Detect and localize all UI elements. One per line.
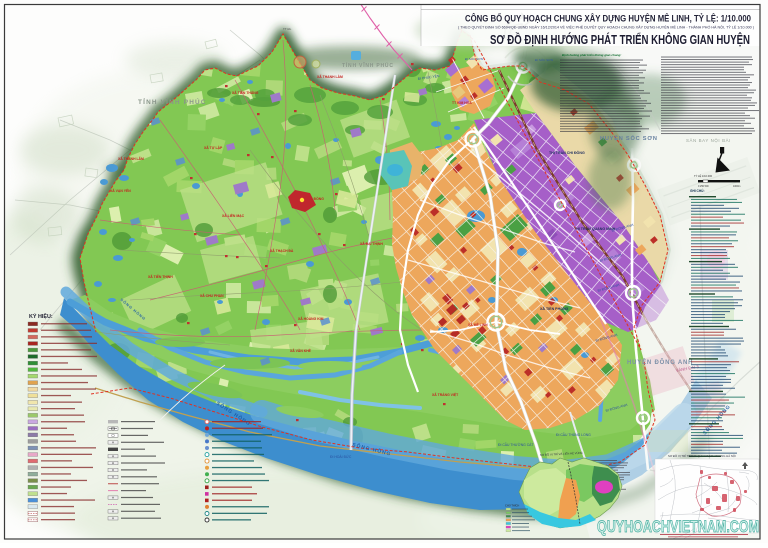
svg-text:SÂN BAY NỘI BÀI: SÂN BAY NỘI BÀI — [686, 138, 731, 143]
svg-text:XÃ TỰ LẬP: XÃ TỰ LẬP — [204, 145, 223, 150]
svg-text:XÃ HOÀNG KIM: XÃ HOÀNG KIM — [298, 316, 324, 321]
svg-text:TT KIM HOA: TT KIM HOA — [452, 101, 472, 105]
svg-text:KÝ HIỆU:: KÝ HIỆU: — [29, 312, 53, 320]
svg-text:SƠ ĐỒ VỊ TRÍ TRONG QUY HOẠCH C: SƠ ĐỒ VỊ TRÍ TRONG QUY HOẠCH CHUNG HÀ NỘ… — [668, 453, 736, 458]
svg-text:QUYHOACHVIETNAM.COM: QUYHOACHVIETNAM.COM — [597, 517, 759, 536]
svg-text:GHI CHÚ:: GHI CHÚ: — [690, 188, 705, 193]
svg-text:XÃ LIÊN MẠC: XÃ LIÊN MẠC — [222, 213, 245, 218]
svg-text:ĐI CẦU THƯỜNG CÁT: ĐI CẦU THƯỜNG CÁT — [498, 442, 534, 447]
svg-text:0 250 500: 0 250 500 — [698, 185, 709, 188]
svg-text:XÃ VẠN YÊN: XÃ VẠN YÊN — [110, 188, 131, 193]
svg-text:XÃ VĂN KHÊ: XÃ VĂN KHÊ — [290, 348, 312, 353]
svg-text:ĐI CẦU THĂNG LONG: ĐI CẦU THĂNG LONG — [556, 433, 591, 437]
svg-text:XÃ MÊ LINH: XÃ MÊ LINH — [468, 322, 488, 327]
svg-text:CÔNG BỐ QUY HOẠCH CHUNG XÂY DỰ: CÔNG BỐ QUY HOẠCH CHUNG XÂY DỰNG HUYỆN M… — [465, 13, 751, 24]
svg-text:XÃ TIẾN THẮNG: XÃ TIẾN THẮNG — [232, 90, 259, 95]
svg-text:TỈNH VĨNH PHÚC: TỈNH VĨNH PHÚC — [342, 62, 394, 69]
svg-text:XÃ ĐẠI THỊNH: XÃ ĐẠI THỊNH — [360, 241, 383, 246]
svg-text:SƠ ĐỒ ĐỊNH HƯỚNG PHÁT TRIỂN KH: SƠ ĐỒ ĐỊNH HƯỚNG PHÁT TRIỂN KHÔNG GIAN H… — [490, 32, 750, 47]
svg-text:ĐI SÓC SƠN: ĐI SÓC SƠN — [535, 57, 553, 62]
svg-text:XÃ THANH LÂM: XÃ THANH LÂM — [317, 74, 343, 79]
svg-text:Định hướng phát triển không gi: Định hướng phát triển không gian chung: — [562, 53, 621, 57]
svg-text:HUYỆN SÓC SƠN: HUYỆN SÓC SƠN — [600, 134, 658, 142]
svg-text:THỊ TRẤN CHI ĐÔNG: THỊ TRẤN CHI ĐÔNG — [549, 150, 585, 155]
svg-text:XÃ THANH LÃM: XÃ THANH LÃM — [118, 156, 144, 161]
svg-text:HUYỆN ĐÔNG ANH: HUYỆN ĐÔNG ANH — [627, 358, 693, 366]
svg-text:( THEO QUYẾT ĐỊNH SỐ 6694/QĐ-U: ( THEO QUYẾT ĐỊNH SỐ 6694/QĐ-UBND NGÀY 1… — [458, 25, 754, 30]
svg-text:XÃ THẠCH ĐÀ: XÃ THẠCH ĐÀ — [270, 248, 294, 253]
svg-text:THỊ TRẤN QUANG MINH: THỊ TRẤN QUANG MINH — [574, 227, 616, 231]
svg-text:XÃ CHU PHAN: XÃ CHU PHAN — [200, 293, 224, 298]
svg-text:ĐI SÓC SƠN: ĐI SÓC SƠN — [465, 56, 483, 61]
svg-text:XÃ TIẾN THỊNH: XÃ TIẾN THỊNH — [148, 274, 173, 279]
svg-text:XÃ TIỀN PHONG: XÃ TIỀN PHONG — [540, 306, 569, 311]
svg-text:XÃ TRÁNG VIỆT: XÃ TRÁNG VIỆT — [432, 392, 459, 397]
svg-text:TT ĐL: TT ĐL — [283, 27, 292, 31]
svg-text:TỈNH VĨNH PHÚC: TỈNH VĨNH PHÚC — [138, 97, 207, 106]
svg-text:1000m: 1000m — [733, 185, 740, 188]
svg-text:ĐI HOÀI ĐỨC: ĐI HOÀI ĐỨC — [330, 454, 352, 459]
